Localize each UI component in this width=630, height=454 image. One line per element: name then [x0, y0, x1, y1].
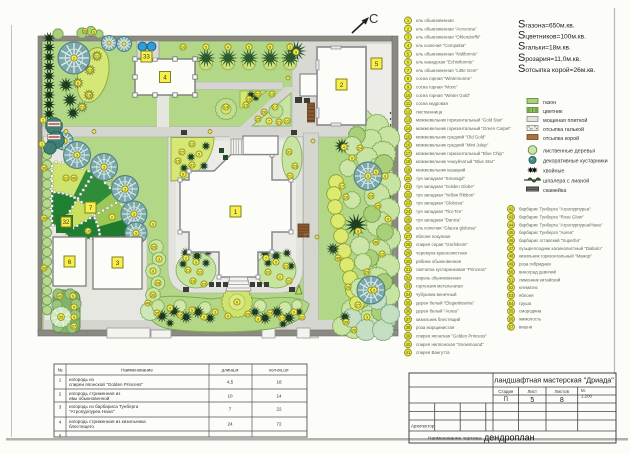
svg-text:шпалера с лианой: шпалера с лианой: [543, 178, 589, 185]
svg-text:"Атропурпуреа Нана": "Атропурпуреа Нана": [69, 409, 115, 414]
svg-text:30: 30: [42, 266, 47, 271]
svg-text:жимолость: жимолость: [519, 317, 542, 322]
svg-text:ель колючая "Compakta": ель колючая "Compakta": [416, 43, 466, 48]
svg-text:20: 20: [152, 245, 157, 250]
svg-text:56: 56: [509, 317, 514, 322]
svg-text:хвойные: хвойные: [543, 168, 564, 175]
svg-text:блестящего: блестящего: [69, 424, 94, 429]
svg-text:клематис: клематис: [519, 285, 539, 290]
svg-text:47: 47: [509, 246, 514, 251]
svg-text:лиственные деревья: лиственные деревья: [543, 149, 595, 155]
svg-text:рябина обыкновенная: рябина обыкновенная: [416, 259, 462, 264]
svg-text:барбарис Тунберга "Атропурпуре: барбарис Тунберга "Атропурпуреа/Нана": [519, 222, 603, 227]
svg-text:53: 53: [509, 293, 514, 298]
svg-text:40: 40: [58, 294, 63, 299]
svg-text:14: 14: [224, 105, 229, 110]
svg-text:туя западная "Smaragd": туя западная "Smaragd": [416, 176, 465, 181]
svg-text:14: 14: [276, 394, 282, 399]
svg-text:18: 18: [406, 159, 411, 164]
svg-text:можжевельник чешуйчатый "Blue: можжевельник чешуйчатый "Blue Star": [416, 159, 495, 164]
svg-text:5: 5: [375, 61, 379, 68]
svg-text:спирея Вангутта: спирея Вангутта: [416, 350, 450, 355]
svg-text:13: 13: [88, 68, 93, 73]
svg-text:можжевельник средний "Mint Jul: можжевельник средний "Mint Julep": [416, 143, 489, 148]
svg-text:37: 37: [72, 324, 77, 329]
svg-text:21: 21: [277, 120, 282, 125]
svg-text:барбарис Тунберга "Aurea": барбарис Тунберга "Aurea": [519, 230, 574, 235]
svg-text:№: №: [58, 368, 63, 373]
svg-text:10: 10: [344, 195, 349, 200]
svg-text:спирея серая "Grefsheim": спирея серая "Grefsheim": [416, 242, 468, 247]
svg-text:26: 26: [262, 110, 267, 115]
svg-text:17: 17: [280, 316, 285, 321]
svg-text:17: 17: [406, 151, 411, 156]
svg-text:33: 33: [143, 55, 150, 61]
svg-text:46: 46: [72, 176, 77, 181]
svg-text:10: 10: [86, 229, 91, 234]
svg-text:цветник: цветник: [543, 109, 563, 115]
svg-text:10: 10: [181, 45, 186, 50]
svg-text:можжевельник горизонтальный "G: можжевельник горизонтальный "Green Carpe…: [416, 126, 512, 131]
svg-text:2: 2: [59, 391, 62, 396]
svg-text:пузыреплодник калинолистный "D: пузыреплодник калинолистный "Diabolo": [519, 246, 603, 251]
svg-text:35: 35: [59, 315, 64, 320]
svg-text:можжевельник казацкий: можжевельник казацкий: [416, 168, 466, 173]
svg-text:ель обыкновенная "Little Gem": ель обыкновенная "Little Gem": [416, 68, 478, 73]
svg-text:дендроплан: дендроплан: [484, 433, 535, 443]
svg-text:С: С: [369, 11, 378, 26]
svg-text:сосна горная "Мопс": сосна горная "Мопс": [416, 85, 458, 90]
svg-text:33: 33: [406, 284, 411, 289]
svg-text:барбарис оттавский "Superba": барбарис оттавский "Superba": [519, 238, 581, 243]
svg-text:40: 40: [406, 342, 411, 347]
svg-text:46: 46: [374, 240, 379, 245]
svg-text:декоративные кустарники: декоративные кустарники: [543, 159, 608, 165]
svg-text:31: 31: [406, 267, 411, 272]
svg-text:вишня: вишня: [519, 324, 533, 329]
svg-text:52: 52: [509, 285, 514, 290]
svg-text:21: 21: [284, 264, 289, 269]
svg-text:ель обыкновенная "Acrocona": ель обыкновенная "Acrocona": [416, 26, 477, 31]
svg-text:ель обыкновенная "Ohlendorffii: ель обыкновенная "Ohlendorffii": [416, 35, 481, 40]
svg-text:можжевельник средний "Old Gold: можжевельник средний "Old Gold": [416, 134, 486, 139]
svg-text:4: 4: [163, 74, 167, 81]
svg-text:кизильник горизонтальный "Мажо: кизильник горизонтальный "Мажор": [519, 254, 592, 259]
svg-text:35: 35: [406, 300, 411, 305]
svg-text:12: 12: [406, 109, 411, 114]
svg-text:35: 35: [151, 293, 156, 298]
svg-text:35: 35: [155, 311, 160, 316]
svg-text:7: 7: [229, 407, 232, 412]
svg-text:ель колючая "Glauca globosa": ель колючая "Glauca globosa": [416, 226, 477, 231]
svg-text:ель канадская "Echiniformis": ель канадская "Echiniformis": [416, 60, 474, 65]
svg-text:дерен белый "Aurea": дерен белый "Aurea": [416, 309, 459, 314]
svg-text:лапчатка кустарниковая "Prince: лапчатка кустарниковая "Princess": [416, 267, 487, 272]
svg-text:48: 48: [509, 254, 514, 259]
svg-text:чубушник венечный: чубушник венечный: [416, 292, 457, 297]
svg-text:26: 26: [406, 226, 411, 231]
svg-text:21: 21: [186, 268, 191, 273]
svg-text:29: 29: [365, 270, 370, 275]
svg-text:туя западная "Yellow Ribbon": туя западная "Yellow Ribbon": [416, 192, 475, 197]
svg-text:21: 21: [80, 105, 85, 110]
svg-text:туя западная "Tini-Tim": туя западная "Tini-Tim": [416, 209, 463, 214]
svg-text:34: 34: [406, 292, 411, 297]
svg-text:28: 28: [406, 242, 411, 247]
svg-text:21: 21: [64, 176, 69, 181]
svg-text:роза морщинистая: роза морщинистая: [416, 325, 455, 330]
svg-text:барбарис Тунберга "Атропурпуре: барбарис Тунберга "Атропурпуреа": [519, 207, 591, 212]
svg-text:ель обыкновенная: ель обыкновенная: [416, 18, 454, 23]
svg-text:Архитектор: Архитектор: [411, 424, 435, 429]
svg-text:24: 24: [227, 422, 233, 427]
svg-text:51: 51: [509, 277, 514, 282]
svg-text:24: 24: [406, 209, 411, 214]
svg-text:23: 23: [293, 164, 298, 169]
svg-text:скамейка: скамейка: [543, 187, 566, 194]
svg-text:27: 27: [406, 234, 411, 239]
svg-text:ландшафтная мастерская "Дриада: ландшафтная мастерская "Дриада": [494, 376, 614, 385]
svg-text:мощеная плиткой: мощеная плиткой: [543, 117, 587, 124]
svg-text:15: 15: [244, 103, 249, 108]
svg-text:роза гибридная: роза гибридная: [519, 262, 551, 267]
svg-text:46: 46: [146, 301, 151, 306]
svg-text:5: 5: [530, 397, 534, 404]
svg-text:сосна горная "Wintersonne": сосна горная "Wintersonne": [416, 76, 472, 81]
svg-text:24: 24: [358, 146, 363, 151]
svg-text:4,5: 4,5: [227, 380, 234, 385]
svg-text:38: 38: [406, 325, 411, 330]
svg-text:30: 30: [42, 166, 47, 171]
svg-text:спирея японская "Golden Prince: спирея японская "Golden Princess": [416, 334, 487, 339]
svg-text:29: 29: [369, 194, 374, 199]
svg-text:отсыпка корой: отсыпка корой: [543, 135, 579, 142]
svg-text:21: 21: [406, 184, 411, 189]
svg-text:30: 30: [42, 216, 47, 221]
svg-text:6: 6: [68, 259, 72, 266]
svg-text:яблоня: яблоня: [519, 293, 534, 298]
svg-text:18: 18: [276, 380, 282, 385]
svg-text:36: 36: [83, 29, 88, 34]
svg-text:16: 16: [247, 97, 252, 102]
svg-text:37: 37: [406, 317, 411, 322]
svg-text:лиственница: лиственница: [416, 109, 443, 114]
svg-text:23: 23: [406, 201, 411, 206]
svg-text:Стадия: Стадия: [498, 389, 514, 394]
svg-text:Листов: Листов: [555, 389, 570, 394]
svg-text:кол-во,шт: кол-во,шт: [269, 368, 289, 373]
svg-text:спирея ниппонская "Snowmound": спирея ниппонская "Snowmound": [416, 342, 484, 347]
svg-text:8: 8: [560, 397, 564, 404]
svg-text:27: 27: [180, 150, 185, 155]
svg-text:3: 3: [59, 404, 62, 409]
svg-text:1:200: 1:200: [581, 393, 593, 398]
svg-text:можжевельник горизонтальный "G: можжевельник горизонтальный "Gold Star": [416, 118, 503, 123]
svg-text:спиреи японской "Golden Prince: спиреи японской "Golden Princess": [69, 381, 143, 387]
svg-text:49: 49: [509, 262, 514, 267]
svg-text:10: 10: [266, 270, 271, 275]
svg-text:17: 17: [273, 105, 278, 110]
svg-text:57: 57: [509, 324, 514, 329]
svg-text:12: 12: [380, 252, 385, 257]
svg-text:24: 24: [268, 311, 273, 316]
svg-text:36: 36: [406, 309, 411, 314]
svg-text:29: 29: [406, 251, 411, 256]
svg-text:сирень обыкновенная: сирень обыкновенная: [416, 275, 461, 280]
svg-text:3: 3: [116, 260, 120, 267]
svg-text:41: 41: [406, 350, 411, 355]
svg-text:ивы обыкновенной: ивы обыкновенной: [69, 395, 110, 401]
svg-text:отсыпка галькой: отсыпка галькой: [543, 126, 584, 133]
svg-text:46: 46: [509, 238, 514, 243]
svg-text:25: 25: [406, 217, 411, 222]
svg-text:39: 39: [346, 285, 351, 290]
svg-text:туя западная "Globosa": туя западная "Globosa": [416, 201, 464, 206]
svg-text:17: 17: [340, 184, 345, 189]
svg-text:19: 19: [406, 168, 411, 173]
svg-text:можжевельник горизонтальный "B: можжевельник горизонтальный "Blue Chip": [416, 151, 504, 156]
svg-text:22: 22: [256, 92, 261, 97]
svg-text:45: 45: [336, 256, 341, 261]
svg-text:23: 23: [202, 282, 207, 287]
svg-text:сосна кедровая: сосна кедровая: [416, 101, 448, 106]
svg-text:16: 16: [406, 143, 411, 148]
svg-text:42: 42: [509, 207, 514, 212]
svg-text:барбарис Тунберга "Rose Glow": барбарис Тунберга "Rose Glow": [519, 214, 584, 219]
svg-text:13: 13: [406, 118, 411, 123]
svg-text:55: 55: [509, 309, 514, 314]
svg-text:10: 10: [191, 279, 196, 284]
svg-text:39: 39: [406, 334, 411, 339]
svg-text:туя западная "Danica": туя западная "Danica": [416, 217, 461, 222]
svg-text:П: П: [504, 397, 508, 403]
svg-text:20: 20: [406, 176, 411, 181]
svg-text:32: 32: [406, 275, 411, 280]
svg-text:черемуха краснолистная: черемуха краснолистная: [416, 251, 468, 256]
svg-text:ель обыкновенная "Nidiformis": ель обыкновенная "Nidiformis": [416, 51, 478, 56]
svg-text:15: 15: [406, 134, 411, 139]
svg-text:72: 72: [276, 422, 282, 427]
svg-text:19: 19: [87, 93, 92, 98]
svg-text:Наименование чертежа:: Наименование чертежа:: [428, 436, 482, 442]
svg-text:31: 31: [190, 163, 195, 168]
svg-text:1: 1: [59, 377, 62, 382]
svg-text:30: 30: [406, 259, 411, 264]
svg-text:44: 44: [509, 222, 514, 227]
svg-text:25: 25: [256, 117, 261, 122]
svg-text:45: 45: [509, 230, 514, 235]
svg-text:14: 14: [178, 313, 183, 318]
svg-text:10: 10: [406, 93, 411, 98]
svg-text:50: 50: [509, 269, 514, 274]
svg-text:27: 27: [356, 303, 361, 308]
svg-text:32: 32: [63, 220, 70, 226]
svg-text:28: 28: [156, 281, 161, 286]
svg-text:43: 43: [509, 214, 514, 219]
svg-text:газон: газон: [543, 100, 556, 106]
svg-text:22: 22: [406, 192, 411, 197]
svg-text:10: 10: [227, 394, 233, 399]
svg-text:Лист: Лист: [528, 389, 538, 394]
svg-text:54: 54: [509, 301, 514, 306]
svg-text:М.: М.: [581, 388, 586, 393]
svg-text:гортензия метельчатая: гортензия метельчатая: [416, 284, 463, 289]
svg-text:лимонник китайский: лимонник китайский: [519, 277, 561, 282]
svg-text:1: 1: [234, 209, 238, 216]
svg-text:5: 5: [59, 433, 62, 438]
svg-text:смородина: смородина: [519, 309, 542, 314]
svg-text:7: 7: [89, 205, 93, 212]
svg-text:22: 22: [276, 407, 282, 412]
svg-text:дерен белый "Elegantissima": дерен белый "Elegantissima": [416, 300, 475, 305]
svg-text:15: 15: [176, 159, 181, 164]
svg-text:13: 13: [270, 92, 275, 97]
svg-text:28: 28: [352, 328, 357, 333]
svg-text:груша: груша: [519, 301, 532, 306]
svg-text:яблоня покупная: яблоня покупная: [416, 234, 451, 239]
svg-text:Наименование: Наименование: [121, 368, 153, 373]
svg-text:29: 29: [246, 312, 251, 317]
svg-text:сосна горная "Winter Gold": сосна горная "Winter Gold": [416, 93, 471, 98]
svg-text:39: 39: [344, 320, 349, 325]
svg-text:виноград девичий: виноград девичий: [519, 269, 556, 274]
svg-text:31: 31: [287, 150, 292, 155]
svg-text:14: 14: [406, 126, 411, 131]
svg-text:туя западная "Golden Globe": туя западная "Golden Globe": [416, 184, 475, 189]
svg-text:2: 2: [340, 82, 344, 89]
svg-text:4: 4: [59, 419, 62, 424]
svg-text:11: 11: [406, 101, 411, 106]
svg-text:12: 12: [190, 142, 195, 147]
svg-text:длина,м: длина,м: [222, 368, 239, 373]
svg-text:кизильник блестящий: кизильник блестящий: [416, 317, 461, 322]
svg-text:25: 25: [376, 204, 381, 209]
